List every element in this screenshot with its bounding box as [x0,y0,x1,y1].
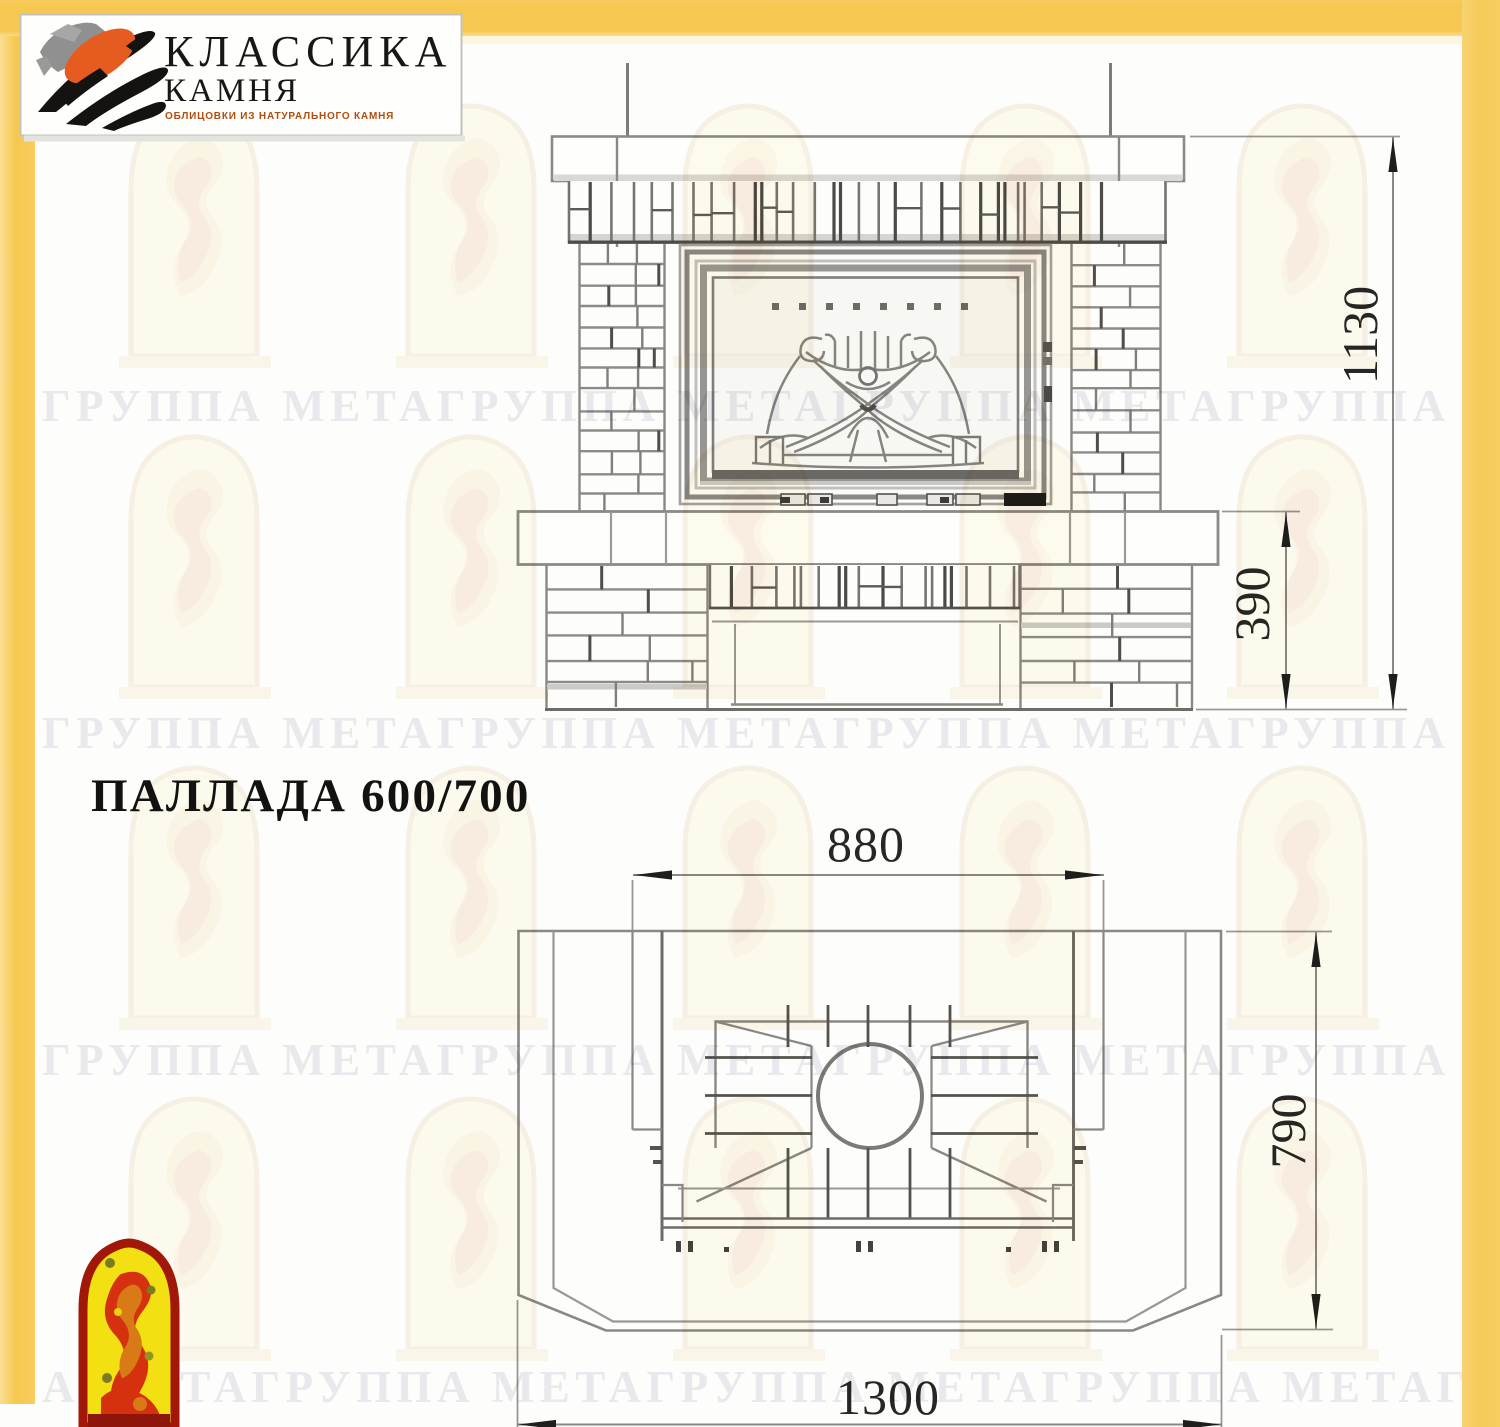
svg-text:ГРУППА МЕТАГРУППА МЕТАГРУППА М: ГРУППА МЕТАГРУППА МЕТАГРУППА МЕТАГРУППА … [42,1035,1500,1085]
svg-text:КАМНЯ: КАМНЯ [164,73,300,109]
svg-text:ГРУППА МЕТАГРУППА МЕТАГРУППА М: ГРУППА МЕТАГРУППА МЕТАГРУППА МЕТАГРУППА … [42,708,1500,758]
svg-text:ОБЛИЦОВКИ ИЗ НАТУРАЛЬНОГО КАМН: ОБЛИЦОВКИ ИЗ НАТУРАЛЬНОГО КАМНЯ [165,111,394,122]
svg-text:КЛАССИКА: КЛАССИКА [164,27,452,76]
svg-text:А МЕТАГРУППА МЕТАГРУППА МЕТАГР: А МЕТАГРУППА МЕТАГРУППА МЕТАГРУППА МЕТАГ… [42,1362,1500,1412]
svg-text:ГРУППА МЕТАГРУППА МЕТАГРУППА М: ГРУППА МЕТАГРУППА МЕТАГРУППА МЕТАГРУППА … [42,381,1500,431]
svg-text:880: 880 [827,816,905,872]
